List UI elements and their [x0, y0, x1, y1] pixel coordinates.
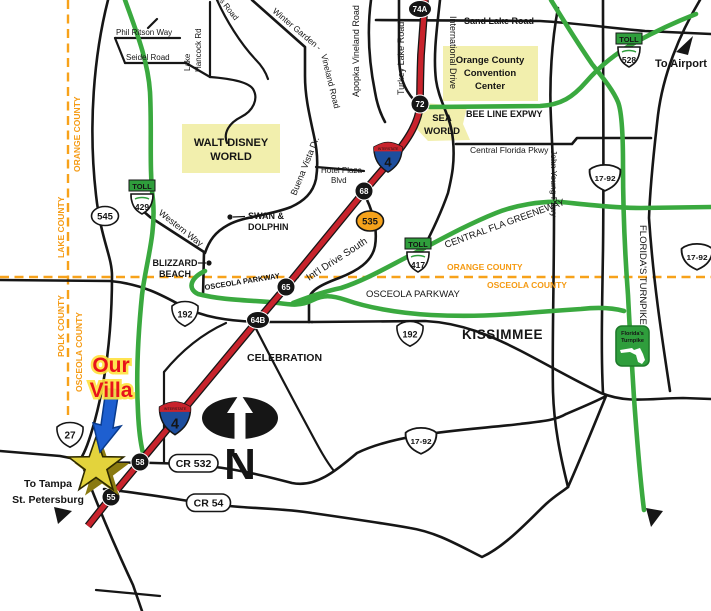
vineland-label: Vineland Road	[319, 53, 342, 110]
exit-64b-label: 64B	[251, 316, 266, 325]
osceola-county-v-label: OSCEOLA COUNTY	[74, 312, 84, 392]
occc-label-1: Orange County	[456, 55, 525, 66]
to-airport-label: To Airport	[655, 58, 707, 70]
floridas-turnpike-road	[551, 0, 644, 510]
orange-county-v-label: ORANGE COUNTY	[72, 96, 82, 172]
sr528-toll-shield: TOLL 528	[616, 33, 642, 67]
cr54-road	[104, 487, 568, 557]
exit-74a-label: 74A	[413, 5, 428, 14]
turkey-lake-label: Turkey Lake Road	[396, 22, 406, 95]
toll-word: TOLL	[408, 240, 428, 249]
polk-county-label: POLK COUNTY	[56, 295, 66, 357]
us192-label: 192	[177, 310, 192, 320]
i4-number: 4	[384, 155, 392, 170]
swan-label-2: DOLPHIN	[248, 222, 289, 232]
lake-county-label: LAKE COUNTY	[56, 196, 66, 258]
us1792-label: 17-92	[410, 438, 432, 446]
sr417-toll-shield: TOLL 417	[405, 238, 431, 272]
our-villa-label-2: Villa	[90, 379, 133, 402]
cr532-label: CR 532	[176, 458, 212, 470]
international-drive-label: International Drive	[448, 16, 458, 89]
central-florida-label: Central Florida Pkwy	[470, 145, 549, 155]
us192-shield-east: 192	[397, 322, 423, 347]
tampa-arrow-icon	[54, 507, 72, 524]
sr417-label: 417	[411, 260, 425, 270]
hotel-plaza-label-1: Hotel Plaza	[321, 166, 362, 175]
osceola-pkwy-label: OSCEOLA PARKWAY	[366, 289, 460, 300]
hotel-plaza-label-2: Blvd	[331, 176, 347, 185]
cr54-label: CR 54	[194, 498, 224, 510]
sea-world-label-2: WORLD	[424, 126, 460, 137]
exit-68-label: 68	[360, 187, 369, 196]
lake-hancock-label-1: Lake	[183, 53, 192, 71]
greeneway-label: CENTRAL FLA GREENEWAY	[443, 197, 567, 251]
i4-shield-north: INTERSTATE 4	[374, 143, 402, 173]
apopka-vineland-label: Apopka Vineland Road	[351, 5, 361, 97]
exit-58-label: 58	[136, 458, 145, 467]
interstate-word: INTERSTATE	[164, 407, 187, 411]
wdw-label-1: WALT DISNEY	[194, 137, 269, 149]
reams-road	[217, 0, 268, 79]
exit-65-label: 65	[282, 283, 291, 292]
north-indicator: N	[202, 393, 278, 489]
our-villa-label-1: Our	[92, 354, 129, 377]
us27-shield: 27	[57, 423, 83, 448]
map-stage: 74A 72 68 65 64B 58 55 INTERSTATE 4 INTE…	[0, 0, 711, 611]
occc-label-3: Center	[475, 81, 505, 92]
sr535-label: 535	[362, 217, 379, 228]
exit-72-label: 72	[416, 100, 425, 109]
i4-number: 4	[171, 416, 179, 432]
western-way-label: Western Way	[157, 208, 206, 249]
osceola-pkwy-diag-label: OSCEOLA PARKWAY	[204, 271, 280, 292]
turnpike-logo-line1: Florida's	[621, 331, 644, 337]
connector-road	[115, 38, 125, 63]
floridas-turnpike-label: FLORIDA'S TURNPIKE	[637, 225, 648, 325]
interstate-word: INTERSTATE	[378, 147, 399, 151]
south-spur-road	[96, 590, 160, 596]
osceola-county-h-label: OSCEOLA COUNTY	[487, 280, 567, 290]
turnpike-arrow-icon	[646, 508, 663, 527]
celebration-road-1	[253, 323, 334, 471]
blizzard-label-1: BLIZZARD	[153, 258, 198, 268]
sr545-label: 545	[97, 212, 114, 223]
lake-hancock-label-2: Hancock Rd	[194, 28, 203, 72]
toll-word: TOLL	[132, 182, 152, 191]
orlando-area-map: 74A 72 68 65 64B 58 55 INTERSTATE 4 INTE…	[0, 0, 711, 611]
us192-shield-west: 192	[172, 302, 198, 327]
us27-label: 27	[64, 431, 76, 442]
swan-dolphin-leader	[233, 217, 245, 218]
sr429-toll-shield: TOLL 429	[129, 180, 155, 214]
wdw-label-2: WORLD	[210, 151, 252, 163]
to-tampa-label-1: To Tampa	[24, 478, 72, 490]
swan-label-1: SWAN &	[248, 211, 285, 221]
celebration-label: CELEBRATION	[247, 352, 322, 364]
sand-lake-label: Sand Lake Road	[464, 16, 534, 26]
floridas-turnpike-logo: Florida's Turnpike	[616, 326, 649, 366]
exit-55-label: 55	[107, 493, 116, 502]
sr429-label: 429	[135, 202, 149, 212]
us1792-north-road	[602, 0, 604, 393]
to-tampa-label-2: St. Petersburg	[12, 494, 84, 506]
blizzard-label-2: BEACH	[159, 269, 191, 279]
us1792-label: 17-92	[686, 254, 708, 262]
us1792-label: 17-92	[594, 175, 616, 183]
us1792-shield-north: 17-92	[590, 165, 621, 191]
sea-world-label-1: SEA	[432, 113, 452, 124]
apopka-vineland-road	[369, 0, 385, 122]
orange-county-h-label: ORANGE COUNTY	[447, 262, 523, 272]
swan-dolphin-dot	[227, 214, 232, 219]
occc-label-2: Convention	[464, 68, 516, 79]
bee-line-label: BEE LINE EXPWY	[466, 109, 543, 119]
sr528-label: 528	[622, 55, 636, 65]
toll-word: TOLL	[619, 35, 639, 44]
seidel-label: Seidel Road	[126, 53, 170, 62]
phil-ritson-label: Phil Ritson Way	[116, 28, 172, 37]
kissimmee-label: KISSIMMEE	[462, 327, 543, 342]
us192-label: 192	[402, 330, 417, 340]
us1792-shield-east: 17-92	[682, 244, 711, 270]
winter-garden-label: Winter Garden -	[271, 6, 324, 53]
turnpike-logo-line2: Turnpike	[621, 338, 644, 344]
us1792-shield-south: 17-92	[406, 428, 437, 454]
blizzard-dot	[206, 260, 211, 265]
